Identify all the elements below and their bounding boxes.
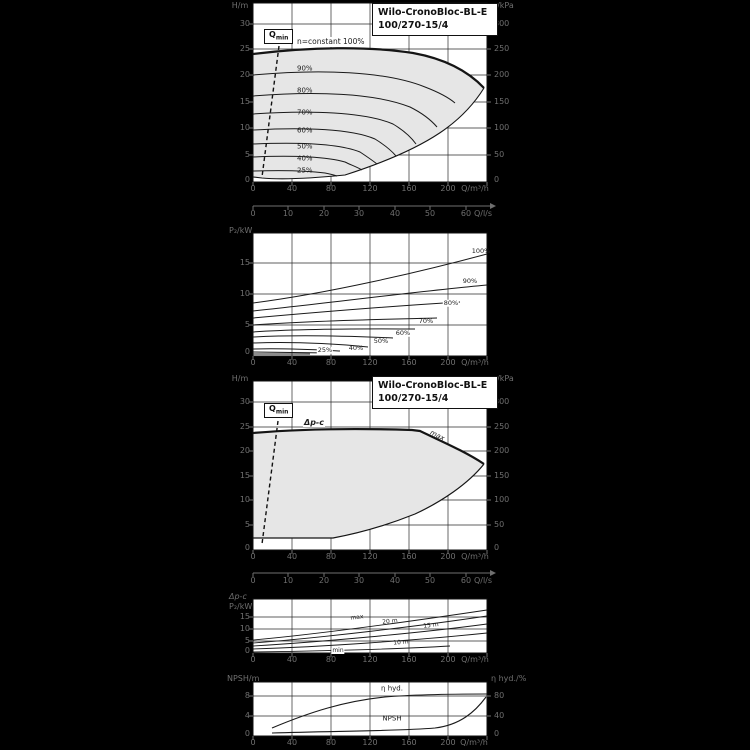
chart1-y-right-tick: 0 (494, 176, 499, 184)
speed-curve-label: 70% (297, 110, 313, 117)
speed-curve-label: 40% (297, 156, 313, 163)
chart2-x-unit: Q/m³/h (461, 359, 489, 367)
lps-tick: 0 (250, 210, 255, 218)
chart4-y-tick: 0 (245, 647, 250, 655)
chart3-y-right-tick: 100 (494, 496, 509, 504)
chart3-x-tick: 160 (401, 553, 416, 561)
chart5-y-right-tick: 80 (494, 692, 504, 700)
qmin-sub: min (276, 409, 289, 416)
chart2-x-tick: 200 (440, 359, 455, 367)
chart2-y-tick: 5 (245, 321, 250, 329)
lps-tick: 10 (283, 210, 293, 218)
chart5-y-right-unit: η hyd./% (491, 675, 526, 683)
chart5-x-tick: 160 (401, 739, 416, 747)
power-curve-label: 90% (463, 278, 477, 285)
chart5-x-unit: Q/m³/h (460, 739, 488, 747)
chart1-y-right-tick: 200 (494, 71, 509, 79)
power-curve-label: 50% (374, 338, 388, 345)
chart1-y-right-tick: 50 (494, 151, 504, 159)
chart5-x-tick: 80 (326, 739, 336, 747)
chart5-x-tick: 0 (250, 739, 255, 747)
chart1-y-right-tick: 100 (494, 124, 509, 132)
lps-tick: 60 (461, 577, 471, 585)
chart2-x-tick: 0 (250, 359, 255, 367)
power-curve-label: 60% (395, 330, 411, 337)
lps-tick: 20 (319, 577, 329, 585)
qmin-sub: min (276, 35, 289, 42)
chart1-x-tick: 80 (326, 185, 336, 193)
chart3-x-tick: 0 (250, 553, 255, 561)
chart2-x-tick: 40 (287, 359, 297, 367)
power-curve-label: 25% (317, 347, 333, 354)
chart4-y-tick: 15 (240, 613, 250, 621)
chart1-y-left-tick: 15 (240, 98, 250, 106)
chart3-title-box: Wilo-CronoBloc-BL-E 100/270-15/4 (372, 376, 498, 409)
chart2-y-unit: P₂/kW (229, 227, 252, 235)
lps-unit: Q/l/s (474, 210, 492, 218)
chart4-y-tick: 10 (240, 625, 250, 633)
chart4-x-unit: Q/m³/h (461, 656, 489, 664)
chart2-x-tick: 80 (326, 359, 336, 367)
speed-curve-label: 90% (297, 66, 313, 73)
eta-curve-label: η hyd. (381, 686, 403, 693)
chart4-y-unit: P₂/kW (229, 603, 252, 611)
lps-tick: 30 (354, 577, 364, 585)
chart2-x-tick: 120 (362, 359, 377, 367)
chart5-y-left-tick: 0 (245, 730, 250, 738)
chart1-x-tick: 40 (287, 185, 297, 193)
chart5-y-right-tick: 0 (494, 730, 499, 738)
chart1-y-left-tick: 25 (240, 45, 250, 53)
chart2-y-tick: 0 (245, 348, 250, 356)
chart1-y-left-tick: 10 (240, 124, 250, 132)
chart4-x-tick: 120 (362, 656, 377, 664)
qmin-flag: Qmin (264, 29, 293, 44)
chart1-x-tick: 160 (401, 185, 416, 193)
npsh-curve-label: NPSH (382, 716, 401, 723)
chart3-y-left-tick: 0 (245, 544, 250, 552)
chart1-x-tick: 200 (440, 185, 455, 193)
lps-tick: 50 (425, 577, 435, 585)
chart1-y-left-tick: 30 (240, 20, 250, 28)
chart5-y-left-unit: NPSH/m (227, 675, 259, 683)
chart3-x-tick: 120 (362, 553, 377, 561)
chart3-y-left-tick: 25 (240, 423, 250, 431)
chart3-y-left-tick: 15 (240, 472, 250, 480)
dpc-power-curve-label: min (331, 648, 344, 654)
chart1-x-unit: Q/m³/h (461, 185, 489, 193)
speed-curve-label: 50% (297, 144, 313, 151)
chart4-x-tick: 0 (250, 656, 255, 664)
chart4-x-tick: 160 (401, 656, 416, 664)
chart1-y-right-tick: 150 (494, 98, 509, 106)
chart5-y-left-tick: 8 (245, 692, 250, 700)
chart5-x-tick: 40 (287, 739, 297, 747)
chart3-y-right-tick: 250 (494, 423, 509, 431)
power-curve-label: 40% (349, 345, 363, 352)
power-curve-label: 100% (472, 248, 491, 255)
chart1-title-box: Wilo-CronoBloc-BL-E 100/270-15/4 (372, 3, 498, 36)
qmin-label: Q (269, 404, 276, 413)
chart3-y-left-tick: 30 (240, 398, 250, 406)
chart2-x-tick: 160 (401, 359, 416, 367)
lps-tick: 20 (319, 210, 329, 218)
chart2-y-tick: 10 (240, 290, 250, 298)
chart4-x-tick: 80 (326, 656, 336, 664)
chart4-x-tick: 40 (287, 656, 297, 664)
chart1-y-left-tick: 0 (245, 176, 250, 184)
charts-artwork (0, 0, 750, 750)
chart3-x-tick: 40 (287, 553, 297, 561)
chart5-y-right-tick: 40 (494, 712, 504, 720)
qmin-label: Q (269, 30, 276, 39)
chart3-x-unit: Q/m³/h (461, 553, 489, 561)
lps-tick: 60 (461, 210, 471, 218)
chart1-y-left-tick: 5 (245, 151, 250, 159)
chart1-y-left-tick: 20 (240, 71, 250, 79)
speed-curve-label: 60% (297, 128, 313, 135)
lps-tick: 50 (425, 210, 435, 218)
chart3-y-right-tick: 150 (494, 472, 509, 480)
chart3-x-tick: 200 (440, 553, 455, 561)
chart4-x-tick: 200 (440, 656, 455, 664)
lps-tick: 0 (250, 577, 255, 585)
n-constant-label: n=constant 100% (294, 37, 367, 47)
chart1-y-right-tick: 250 (494, 45, 509, 53)
lps-tick: 10 (283, 577, 293, 585)
chart5-x-tick: 120 (362, 739, 377, 747)
control-mode-label: Δp-c (303, 419, 325, 427)
chart4-y-tick: 5 (245, 637, 250, 645)
chart3-y-left-tick: 10 (240, 496, 250, 504)
lps-tick: 40 (390, 577, 400, 585)
qmin-flag: Qmin (264, 403, 293, 418)
chart3-y-left-tick: 5 (245, 521, 250, 529)
chart3-y-right-tick: 50 (494, 521, 504, 529)
chart3-y-left-unit: H/m (232, 375, 249, 383)
chart2-y-tick: 15 (240, 259, 250, 267)
chart5-y-left-tick: 4 (245, 712, 250, 720)
power-curve-label: 80% (443, 300, 459, 307)
pump-series-name: Wilo-CronoBloc-BL-E (378, 379, 492, 392)
chart3-y-right-tick: 0 (494, 544, 499, 552)
speed-curve-label: 25% (297, 168, 313, 175)
power-curve-label: 70% (419, 318, 433, 325)
pump-series-name: Wilo-CronoBloc-BL-E (378, 6, 492, 19)
lps-unit: Q/l/s (474, 577, 492, 585)
chart4-mode-label: Δp-c (229, 593, 247, 601)
pump-model-name: 100/270-15/4 (378, 392, 492, 405)
datasheet-page: H/m 30 25 20 15 10 5 0 p/kPa 300 250 200… (0, 0, 750, 750)
chart5-x-tick: 200 (440, 739, 455, 747)
lps-tick: 40 (390, 210, 400, 218)
speed-curve-label: 80% (297, 88, 313, 95)
lps-tick: 30 (354, 210, 364, 218)
pump-model-name: 100/270-15/4 (378, 19, 492, 32)
chart1-x-tick: 0 (250, 185, 255, 193)
chart1-x-tick: 120 (362, 185, 377, 193)
chart1-y-left-unit: H/m (232, 2, 249, 10)
chart3-y-right-tick: 200 (494, 447, 509, 455)
chart3-y-left-tick: 20 (240, 447, 250, 455)
chart3-x-tick: 80 (326, 553, 336, 561)
